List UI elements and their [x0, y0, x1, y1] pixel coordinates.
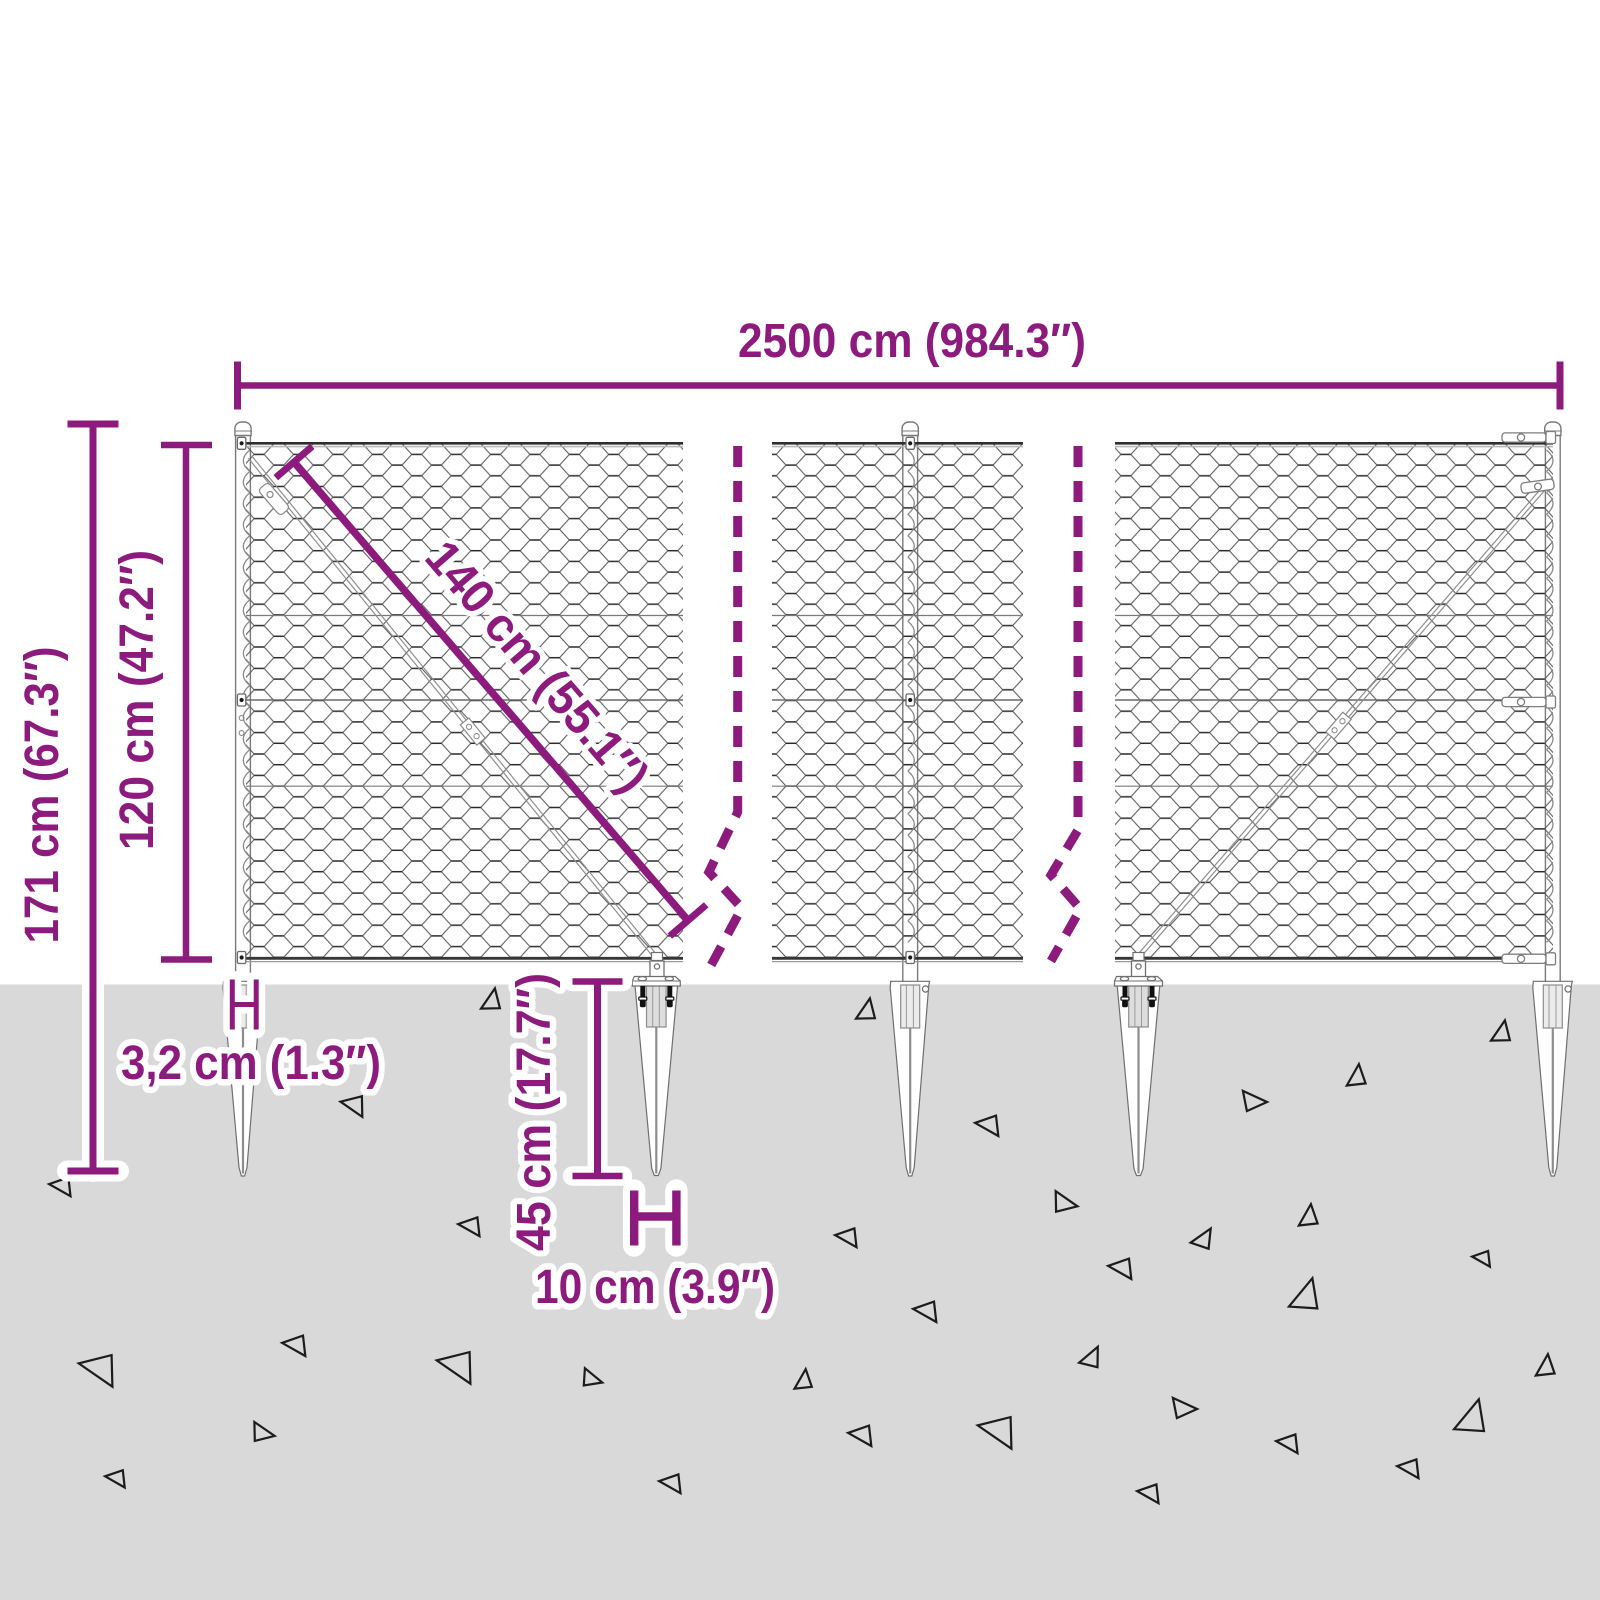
svg-text:2500 cm (984.3″): 2500 cm (984.3″): [738, 315, 1086, 368]
svg-text:120 cm (47.2″): 120 cm (47.2″): [111, 550, 164, 850]
svg-text:171 cm (67.3″): 171 cm (67.3″): [16, 647, 69, 944]
svg-text:45 cm (17.7″): 45 cm (17.7″): [508, 973, 561, 1251]
svg-text:3,2 cm (1.3″): 3,2 cm (1.3″): [121, 1037, 381, 1090]
svg-text:10 cm (3.9″): 10 cm (3.9″): [535, 1261, 775, 1314]
